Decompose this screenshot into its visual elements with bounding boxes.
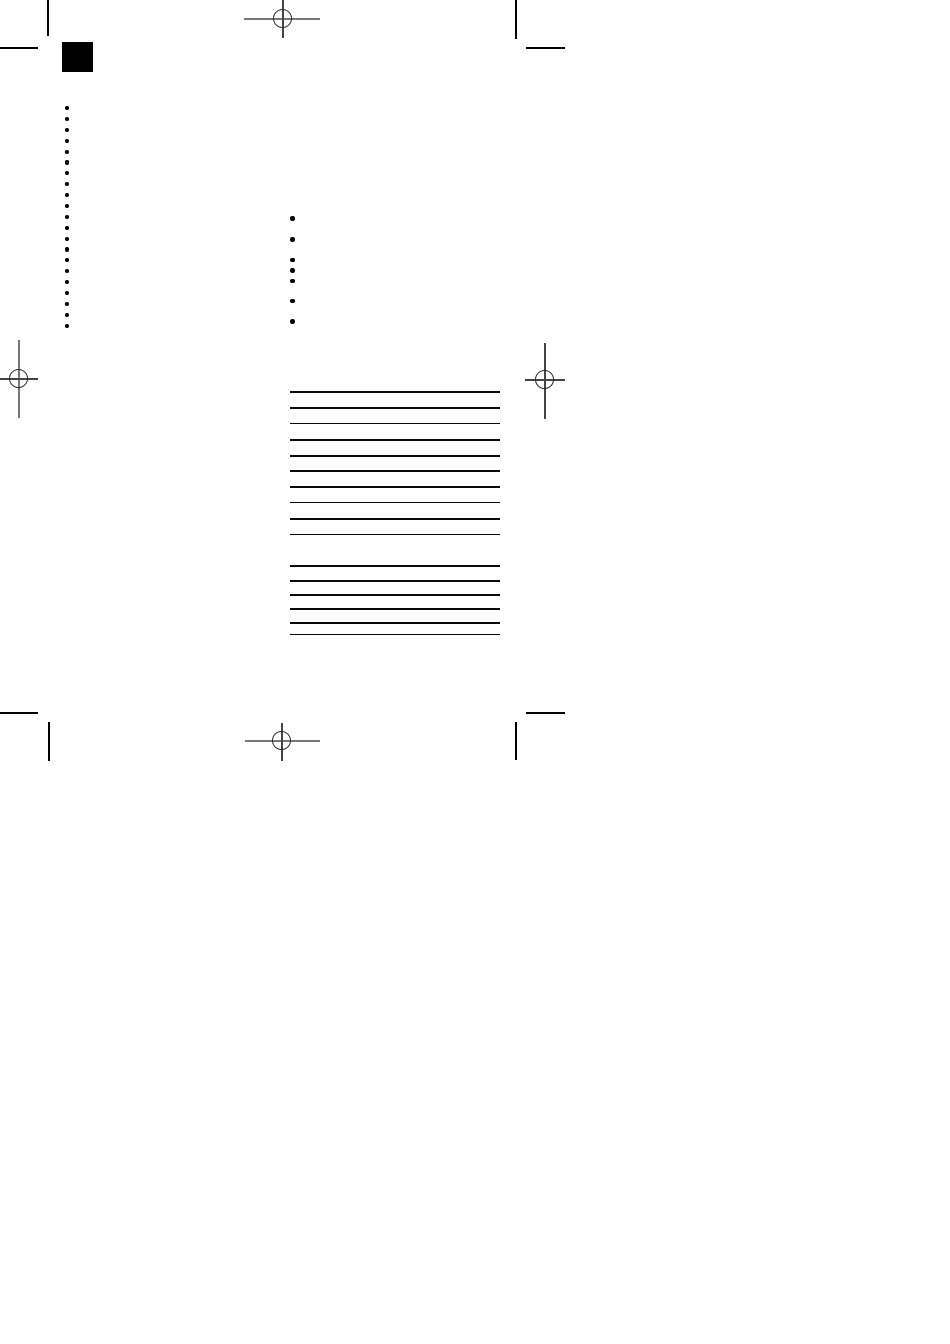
trim-mark-top-right-horizontal (526, 47, 565, 49)
table-rule-line (290, 439, 500, 441)
registration-circle-icon (272, 731, 291, 750)
table-rule-line (290, 391, 500, 393)
trim-mark-bottom-right-vertical (515, 722, 517, 760)
bullet-dot-icon (65, 204, 69, 208)
bullet-dot-icon (65, 150, 69, 154)
bullet-dot-icon (65, 171, 69, 175)
trim-mark-top-left-horizontal (0, 47, 38, 49)
bullet-dot-icon (65, 215, 69, 219)
trim-mark-bottom-left-horizontal (0, 712, 38, 714)
bullet-dot-icon (65, 302, 69, 306)
bullet-dot-icon (65, 237, 69, 241)
bullet-dot-icon (65, 182, 69, 186)
bullet-dot-icon (65, 247, 69, 251)
bullet-dot-icon (65, 280, 69, 284)
bullet-dot-icon (65, 324, 69, 328)
registration-circle-icon (9, 369, 28, 388)
table-rule-line (290, 518, 500, 520)
table-rule-line (290, 594, 500, 596)
table-rule-line (290, 455, 500, 457)
trim-mark-bottom-left-vertical (48, 722, 50, 761)
bullet-dot-icon (65, 313, 69, 317)
table-rule-line (290, 608, 500, 610)
bullet-dot-icon (65, 160, 69, 164)
table-rule-line (290, 423, 500, 425)
bullet-dot-icon (65, 117, 69, 121)
table-rule-line (290, 622, 500, 624)
table-rule-line (290, 565, 500, 567)
bullet-dot-icon (65, 128, 69, 132)
trim-mark-top-right-vertical (515, 0, 517, 39)
table-rule-line (290, 470, 500, 472)
table-rule-line (290, 407, 500, 409)
table-rule-line (290, 580, 500, 582)
bullet-dot-icon (65, 139, 69, 143)
bullet-dot-icon (65, 269, 69, 273)
table-rule-line (290, 486, 500, 488)
printer-ink-square (62, 42, 93, 72)
bullet-dot-icon (65, 258, 69, 262)
left-bullet-column (65, 106, 69, 328)
bullet-dot-icon (65, 291, 69, 295)
trim-mark-bottom-right-horizontal (526, 712, 565, 714)
table-rule-line (290, 534, 500, 536)
table-rule-line (290, 634, 500, 636)
ruled-table-lines (290, 0, 500, 1344)
table-rule-line (290, 502, 500, 504)
bullet-dot-icon (65, 193, 69, 197)
trim-mark-top-left-vertical (47, 0, 49, 36)
scanned-document-page (0, 0, 950, 1344)
registration-circle-icon (535, 370, 554, 389)
bullet-dot-icon (65, 226, 69, 230)
bullet-dot-icon (65, 106, 69, 110)
